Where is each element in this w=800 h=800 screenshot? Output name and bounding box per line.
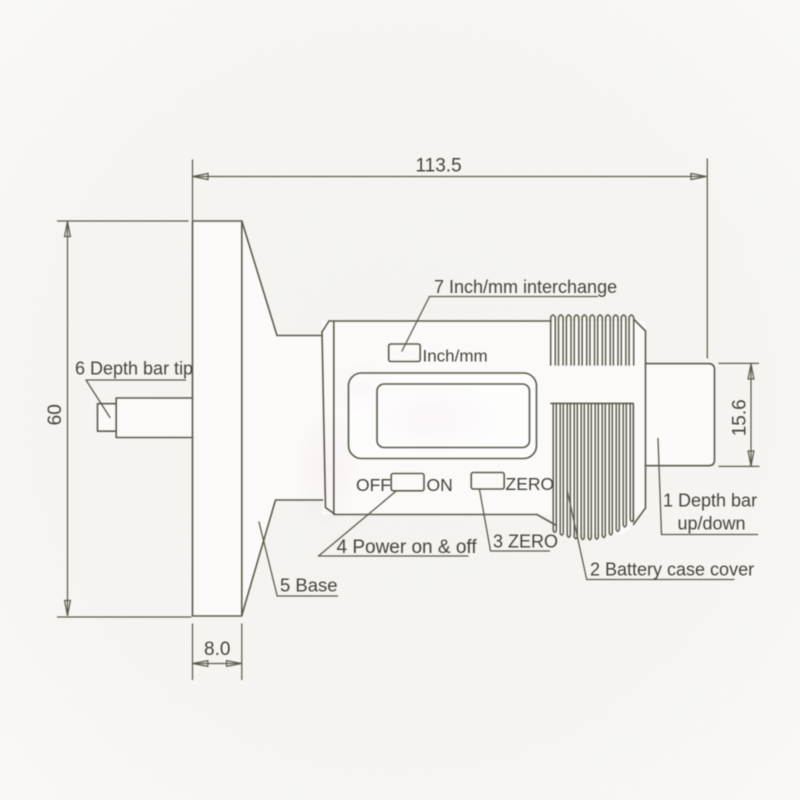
svg-text:8.0: 8.0 (204, 639, 230, 660)
svg-text:60: 60 (45, 404, 66, 425)
svg-text:7 Inch/mm interchange: 7 Inch/mm interchange (434, 277, 617, 297)
svg-text:15.6: 15.6 (730, 399, 751, 436)
svg-text:up/down: up/down (678, 514, 746, 534)
svg-text:113.5: 113.5 (416, 156, 462, 177)
svg-text:3 ZERO: 3 ZERO (493, 532, 558, 552)
svg-text:4 Power on & off: 4 Power on & off (337, 537, 478, 558)
svg-text:OFF: OFF (356, 475, 391, 495)
svg-text:2 Battery case cover: 2 Battery case cover (590, 560, 754, 580)
svg-text:Inch/mm: Inch/mm (423, 347, 488, 366)
svg-text:ON: ON (427, 475, 453, 495)
svg-text:6 Depth bar tip: 6 Depth bar tip (75, 359, 193, 379)
svg-text:ZERO: ZERO (506, 474, 555, 494)
svg-text:1 Depth bar: 1 Depth bar (663, 491, 757, 511)
svg-text:5 Base: 5 Base (280, 575, 338, 596)
